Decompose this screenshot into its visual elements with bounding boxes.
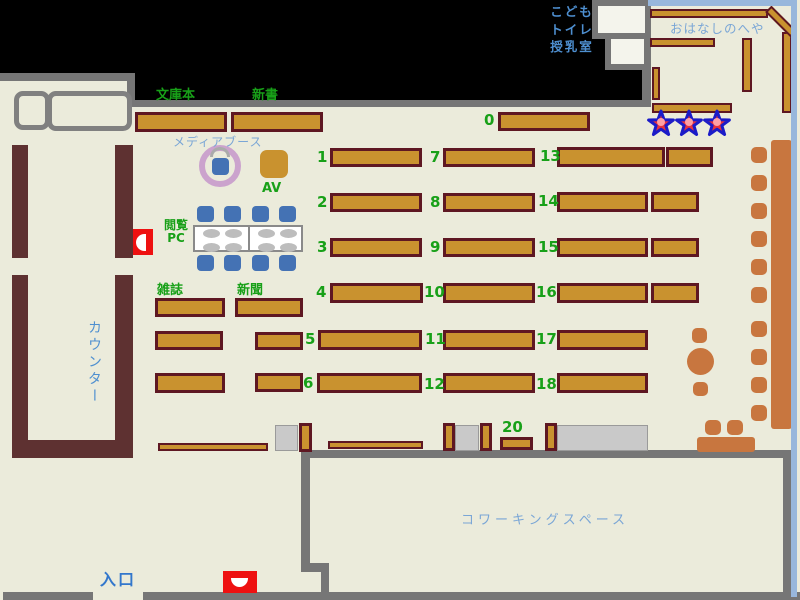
bookshelf [328, 441, 423, 449]
label-coworking-space: コワーキングスペース [461, 509, 629, 528]
shelf-number-4: 4 [316, 282, 326, 302]
shelf-number-11: 11 [425, 329, 446, 349]
pc-station-pad [225, 243, 242, 252]
shelf-number-18: 18 [536, 374, 557, 394]
stool [692, 328, 707, 343]
pc-station-pad [258, 229, 275, 238]
shelf-number-9: 9 [430, 237, 440, 257]
bookshelf [443, 238, 535, 257]
shelf-number-2: 2 [317, 192, 327, 212]
wall [321, 570, 329, 594]
stool [751, 175, 767, 191]
bookshelf [255, 373, 303, 392]
bookshelf [500, 437, 533, 450]
pc-station-pad [225, 229, 242, 238]
wall [0, 73, 135, 81]
stool [751, 203, 767, 219]
shelf-number-5: 5 [305, 329, 315, 349]
av-table [260, 150, 288, 178]
shelf-number-14: 14 [538, 191, 559, 211]
bookshelf [651, 238, 699, 257]
pc-station-pad [203, 229, 220, 238]
pc-station-pad [280, 243, 297, 252]
bookshelf [650, 38, 715, 47]
counter-wall [12, 440, 133, 458]
shelf-number-20: 20 [502, 417, 523, 437]
bookshelf [330, 148, 422, 167]
work-table [557, 425, 648, 451]
label-new-books: 新書 [252, 84, 278, 103]
shelf-number-3: 3 [317, 237, 327, 257]
star-icon [702, 108, 732, 138]
label-browsing-pc: 閲覧 PC [159, 219, 193, 245]
bookshelf [443, 423, 455, 451]
bookshelf [742, 38, 752, 92]
extinguisher-glyph [136, 234, 146, 251]
bookshelf [255, 332, 303, 350]
stool [693, 382, 708, 396]
pc-station-pad [258, 243, 275, 252]
shelf-number-1: 1 [317, 147, 327, 167]
wall [3, 592, 93, 600]
stool [751, 259, 767, 275]
bookshelf [155, 331, 223, 350]
pc-station-pad [280, 229, 297, 238]
bookshelf [135, 112, 227, 132]
shelf-number-16: 16 [536, 282, 557, 302]
chair [197, 255, 214, 271]
bookshelf [557, 147, 665, 167]
bookshelf [231, 112, 323, 132]
bookshelf [666, 147, 713, 167]
shelf-number-13: 13 [540, 146, 561, 166]
bookshelf [330, 238, 422, 257]
extinguisher-glyph [231, 578, 248, 587]
label-av: AV [262, 181, 281, 196]
bookshelf [443, 193, 535, 212]
work-table [455, 425, 479, 451]
wall [127, 100, 651, 107]
label-storytime-room: おはなしのへや [670, 18, 765, 37]
shelf-number-0: 0 [484, 110, 494, 130]
storytime-room-border [648, 0, 797, 6]
bookshelf [443, 330, 535, 350]
wall [301, 452, 310, 571]
bench [697, 437, 755, 452]
fire-extinguisher-icon [223, 571, 257, 593]
wall [143, 592, 800, 600]
star-icon [674, 108, 704, 138]
chair [212, 158, 229, 175]
bookshelf [557, 192, 648, 212]
pc-station-pad [203, 243, 220, 252]
stool [751, 321, 767, 337]
bookshelf [443, 283, 535, 303]
bookshelf [480, 423, 492, 451]
shelf-number-6: 6 [303, 373, 313, 393]
bookshelf [651, 283, 699, 303]
chair [279, 206, 296, 222]
stool [751, 231, 767, 247]
pc-table [193, 225, 303, 252]
stool [751, 287, 767, 303]
bookshelf [155, 373, 225, 393]
chair [197, 206, 214, 222]
counter-wall [115, 145, 133, 258]
library-floor-map: 017132814391541016511176121820文庫本新書メディアブ… [0, 0, 800, 600]
bookshelf [317, 373, 422, 393]
stool [705, 420, 721, 435]
bookshelf [650, 9, 768, 18]
chair [252, 206, 269, 222]
label-counter: カウンター [84, 320, 104, 405]
bookshelf [235, 298, 303, 317]
shelf-number-12: 12 [424, 374, 445, 394]
desk [14, 91, 50, 130]
bookshelf [557, 238, 648, 257]
star-icon [646, 108, 676, 138]
bookshelf [443, 148, 535, 167]
bench [771, 140, 792, 429]
shelf-number-8: 8 [430, 192, 440, 212]
round-table [687, 348, 714, 375]
counter-wall [12, 145, 28, 258]
stool [751, 405, 767, 421]
storytime-room-border [791, 0, 797, 597]
work-table [275, 425, 298, 451]
chair [224, 255, 241, 271]
kids-room-box [605, 33, 650, 70]
label-media-booth: メディアブース [173, 133, 263, 150]
fire-extinguisher-icon [133, 229, 153, 255]
bookshelf [330, 283, 423, 303]
bookshelf [155, 298, 225, 317]
counter-wall [115, 275, 133, 458]
stool [751, 147, 767, 163]
bookshelf [158, 443, 268, 451]
desk [47, 91, 132, 131]
bookshelf [557, 373, 648, 393]
chair [279, 255, 296, 271]
label-kids-toilet-nursing-room: こども トイレ 授乳室 [547, 3, 597, 56]
shelf-number-17: 17 [536, 329, 557, 349]
bookshelf [498, 112, 590, 131]
stool [751, 349, 767, 365]
shelf-number-10: 10 [424, 282, 445, 302]
bookshelf [299, 423, 312, 452]
bookshelf [545, 423, 557, 451]
label-magazines: 雑誌 [157, 279, 183, 298]
bookshelf [557, 330, 648, 350]
bookshelf [557, 283, 648, 303]
label-newspapers: 新聞 [237, 279, 263, 298]
pc-table-divider [248, 227, 250, 250]
bookshelf [652, 67, 660, 100]
black-area [135, 73, 651, 100]
shelf-number-15: 15 [538, 237, 559, 257]
chair [224, 206, 241, 222]
bookshelf [330, 193, 422, 212]
bookshelf [651, 192, 699, 212]
bookshelf [318, 330, 422, 350]
label-paperbacks: 文庫本 [156, 84, 195, 103]
counter-wall [12, 275, 28, 458]
shelf-number-7: 7 [430, 147, 440, 167]
stool [727, 420, 743, 435]
bookshelf [443, 373, 535, 393]
stool [751, 377, 767, 393]
chair [252, 255, 269, 271]
label-entrance: 入口 [100, 566, 136, 590]
